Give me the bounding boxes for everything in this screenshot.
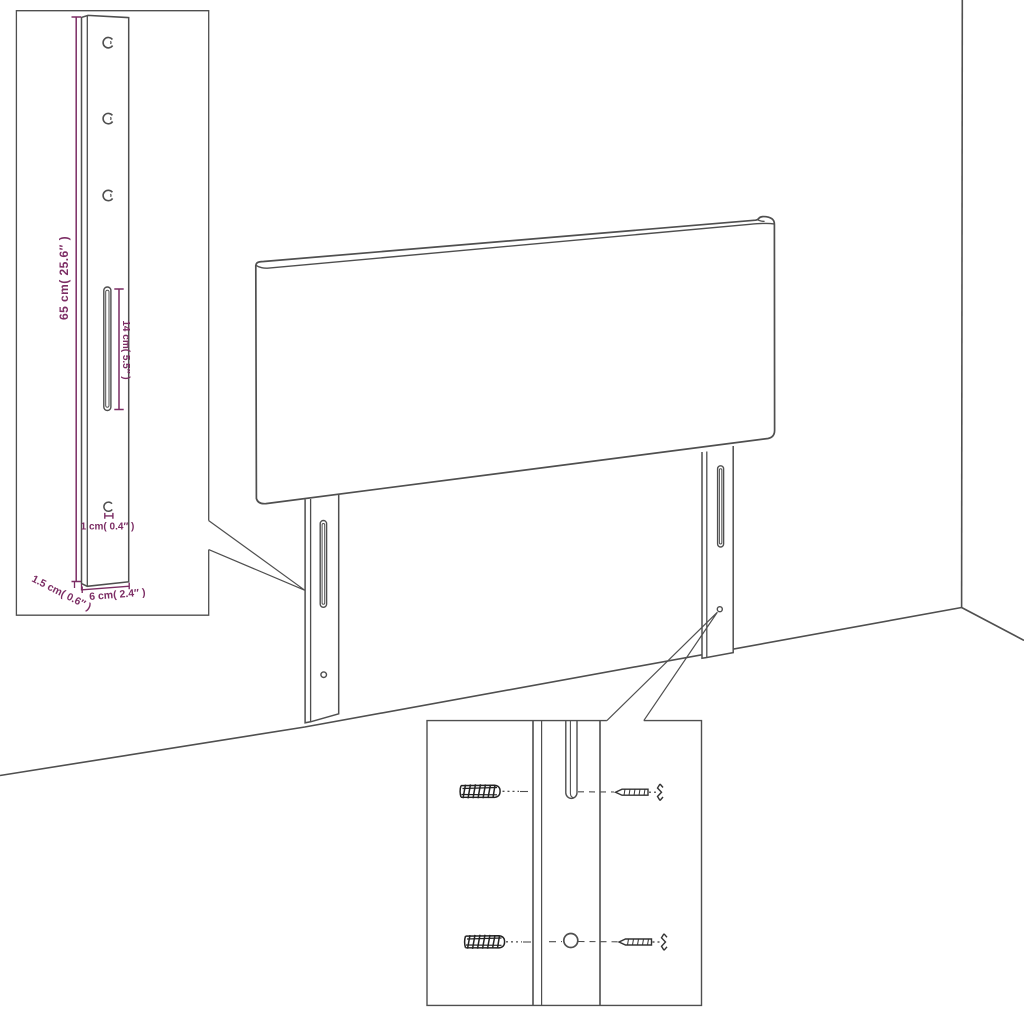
svg-text:1 cm( 0.4″ ): 1 cm( 0.4″ ) <box>81 522 135 533</box>
svg-text:14 cm( 5.5″ ): 14 cm( 5.5″ ) <box>120 320 131 379</box>
svg-text:65 cm( 25.6″ ): 65 cm( 25.6″ ) <box>57 236 71 320</box>
